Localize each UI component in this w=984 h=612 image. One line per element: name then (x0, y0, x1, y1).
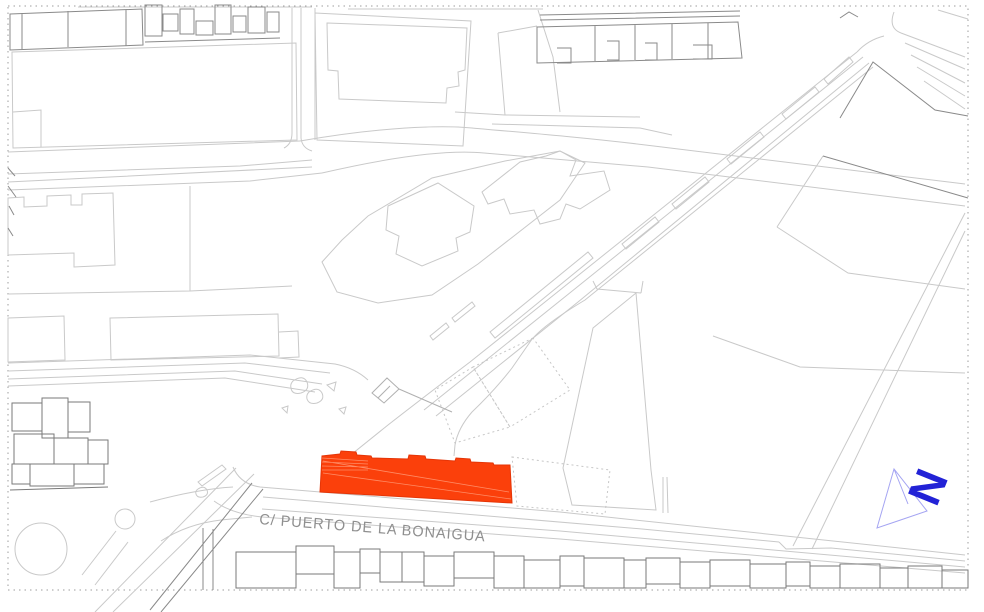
street-label: C/ PUERTO DE LA BONAIGUA (259, 511, 487, 545)
page-border (8, 6, 968, 590)
site-plan-canvas: C/ PUERTO DE LA BONAIGUA N (0, 0, 984, 612)
bottom-buildings-row (236, 546, 968, 588)
north-arrow: N (877, 462, 958, 528)
buildings-dark-layer (8, 5, 968, 612)
roads-light-layer (8, 7, 968, 612)
bottom-left-buildings (10, 398, 108, 490)
highlight-building (320, 451, 512, 503)
north-arrow-letter: N (898, 462, 959, 512)
site-plan-page: C/ PUERTO DE LA BONAIGUA N (0, 0, 984, 612)
